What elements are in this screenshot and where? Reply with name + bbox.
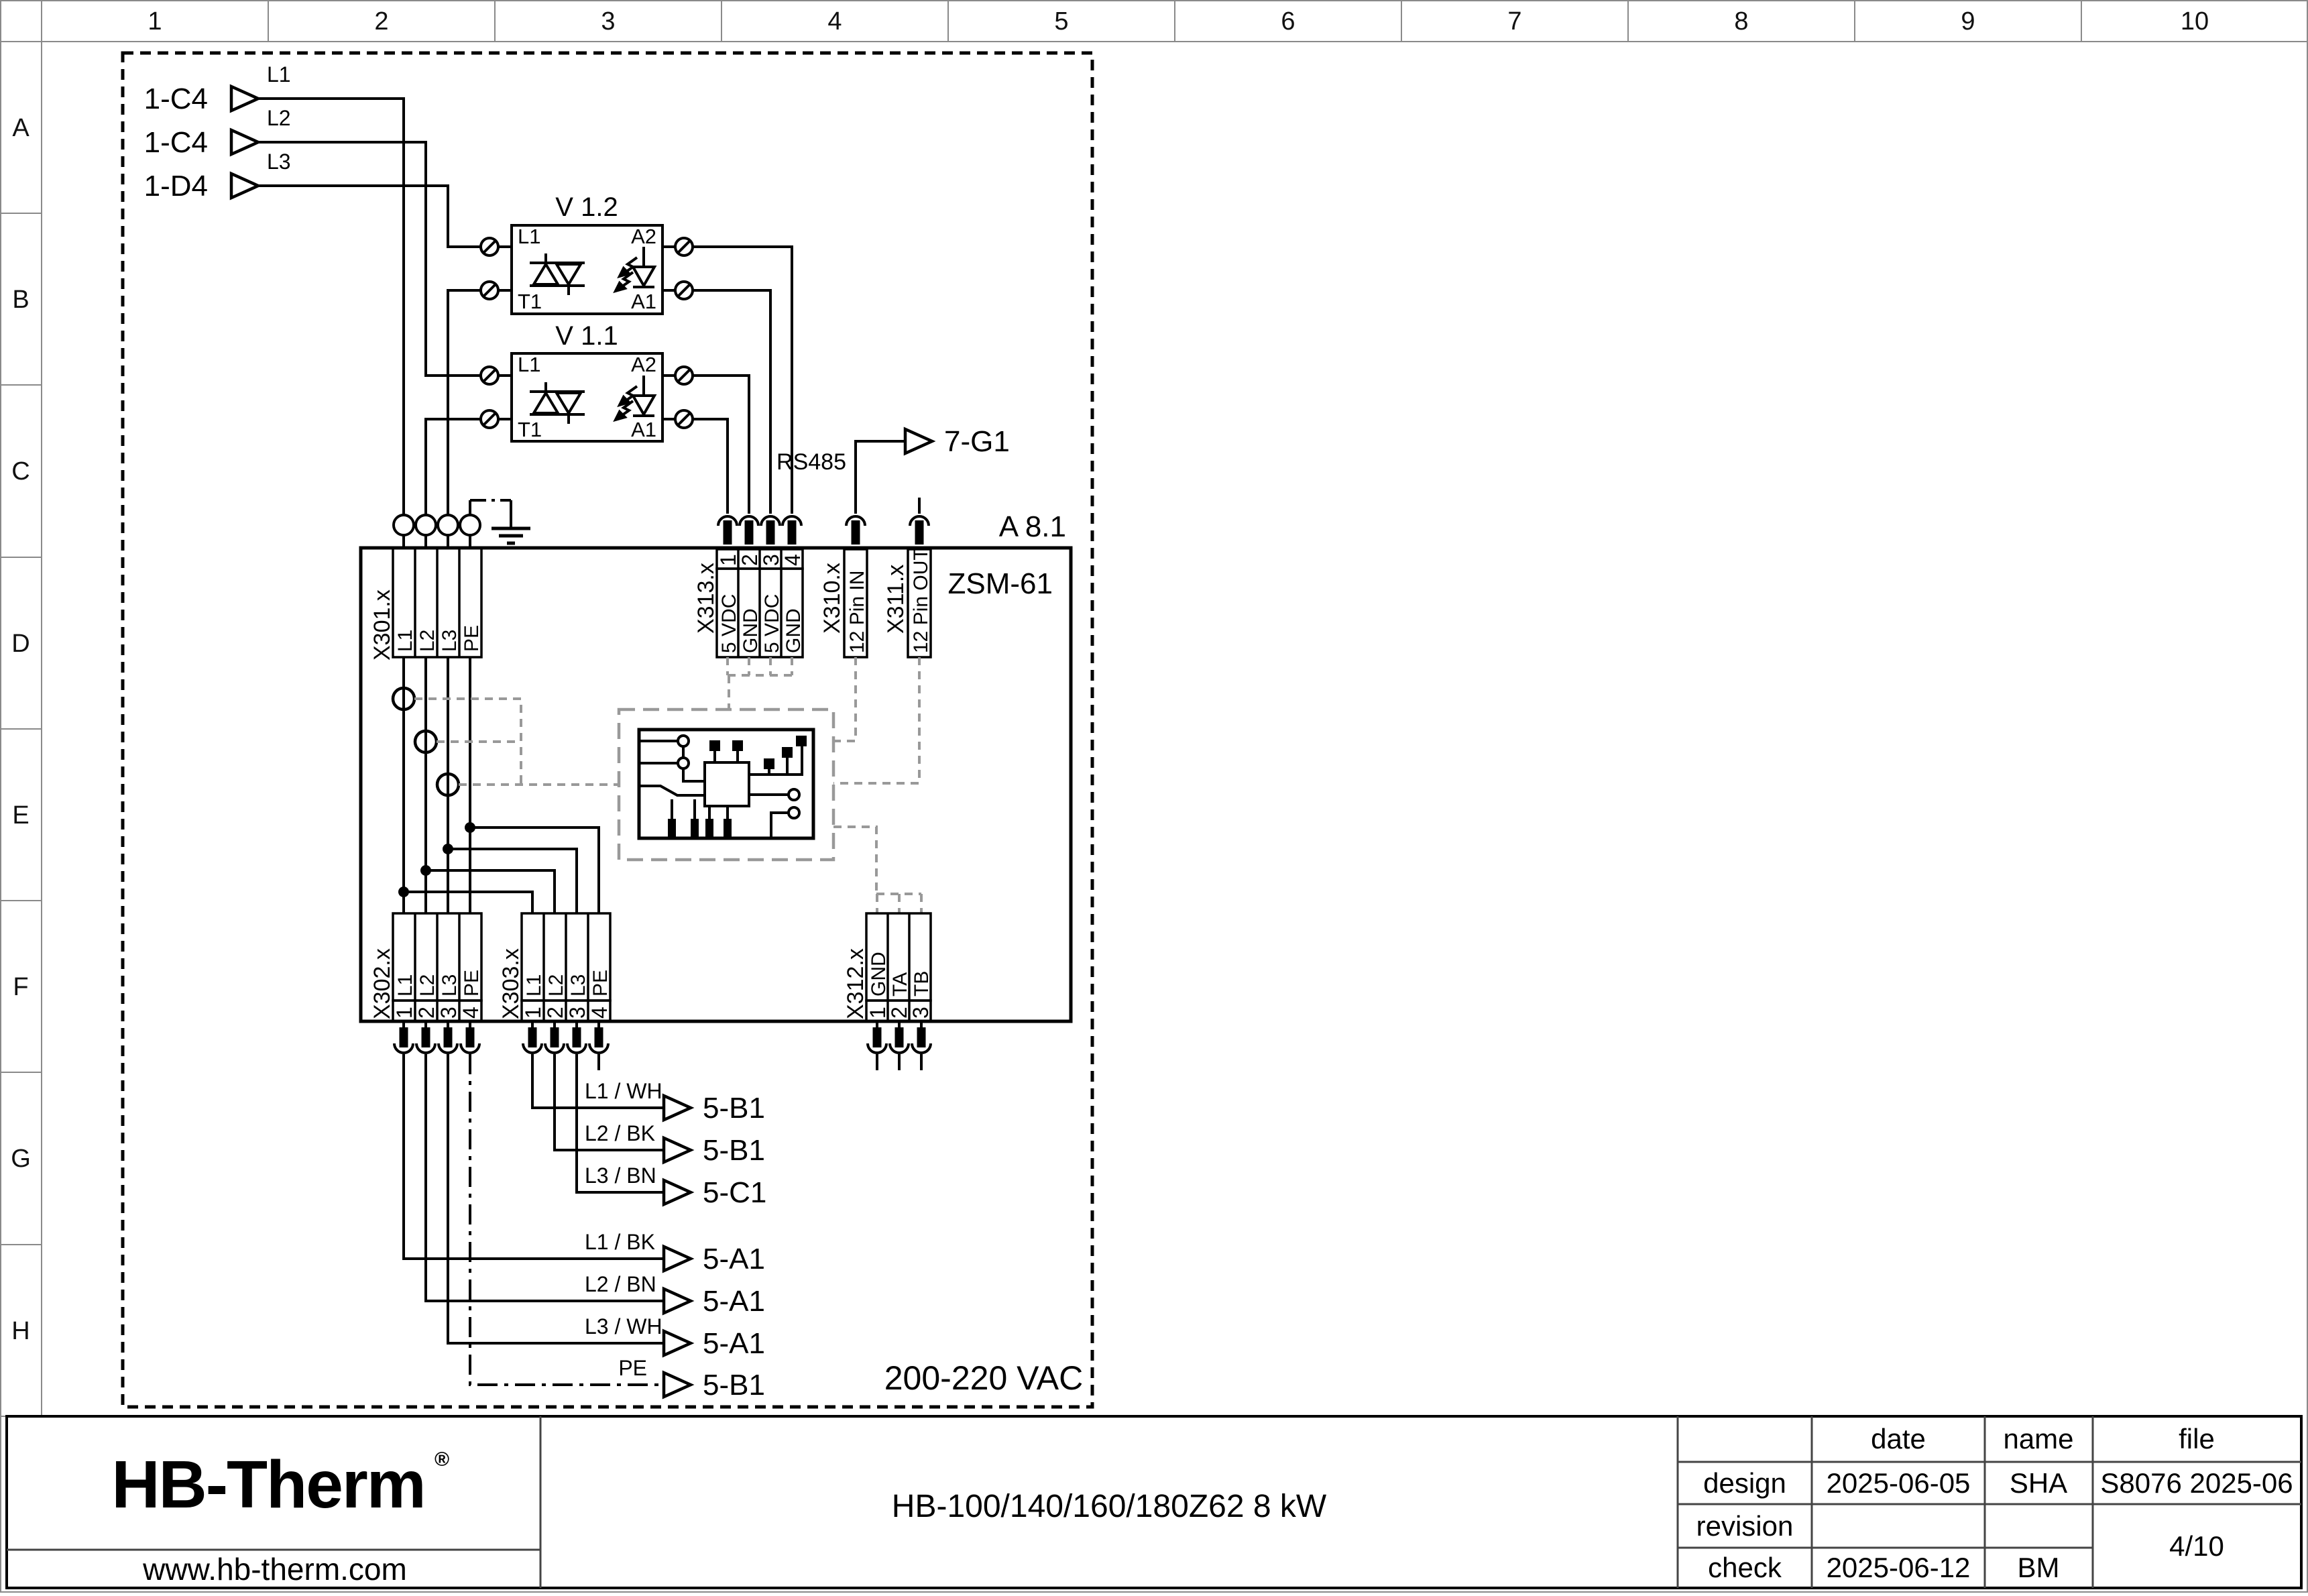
output-ref: 5-B1	[703, 1134, 765, 1167]
input-arrow-icon	[231, 130, 258, 154]
col-label: 8	[1734, 7, 1748, 36]
row-label: F	[13, 973, 28, 1001]
outputs-lower: L1 / BK 5-A1 L2 / BN 5-A1 L3 / WH 5-A1 P…	[585, 1230, 765, 1402]
website: www.hb-therm.com	[142, 1552, 407, 1587]
pin-signal: GND	[868, 952, 890, 996]
output-arrow-icon	[664, 1331, 691, 1355]
input-arrow-icon	[231, 174, 258, 198]
pin-signal: L3	[439, 630, 461, 652]
wire-label: L3 / WH	[585, 1314, 662, 1338]
check-name: BM	[2018, 1552, 2060, 1583]
wire-label: L1 / WH	[585, 1079, 662, 1103]
ssr-v12: V 1.2 L1 A2 T1 A1	[512, 192, 662, 314]
output-arrow-icon	[664, 1247, 691, 1271]
ssr-pin-l1: L1	[518, 225, 540, 248]
output-arrow-icon	[664, 1289, 691, 1313]
col-label: 10	[2181, 7, 2209, 36]
pin-signal: L3	[439, 974, 461, 996]
pin-signal: PE	[461, 625, 483, 652]
pin-signal: PE	[589, 970, 612, 996]
pin-signal: PE	[461, 970, 483, 996]
pin-number: 1	[521, 1007, 545, 1019]
output-ref: 5-A1	[703, 1285, 765, 1318]
phase-label: L1	[267, 62, 291, 87]
output-arrow-icon	[664, 1096, 691, 1120]
connector-x310: X310.x 12 Pin IN	[819, 549, 868, 657]
output-arrow-icon	[905, 429, 932, 453]
pin-number: 2	[543, 1007, 567, 1019]
row-label: B	[12, 286, 29, 314]
output-ref: 5-B1	[703, 1092, 765, 1125]
file-value: S8076 2025-06	[2100, 1467, 2293, 1499]
supply-voltage-label: 200-220 VAC	[884, 1359, 1083, 1397]
row-label-design: design	[1703, 1467, 1786, 1499]
pin-signal: 5 VDC	[761, 594, 783, 653]
x301-socket-icons	[394, 515, 480, 535]
col-label: 5	[1054, 7, 1068, 36]
ssr-pin-a2: A2	[631, 353, 656, 376]
pin-signal: 12 Pin IN	[846, 571, 868, 653]
col-label: 9	[1961, 7, 1975, 36]
pin-signal: 5 VDC	[718, 594, 740, 653]
output-arrow-icon	[664, 1138, 691, 1162]
row-label: A	[12, 114, 30, 142]
pin-number: 2	[887, 1007, 911, 1019]
input-arrow-icon	[231, 87, 258, 111]
row-label: C	[11, 457, 30, 486]
ssr-pin-l1: L1	[518, 353, 540, 376]
pin-signal: 12 Pin OUT	[910, 548, 932, 653]
pin-number: 3	[565, 1007, 589, 1019]
connector-label: X301.x	[369, 589, 395, 661]
row-label: H	[11, 1317, 30, 1345]
pin-number: 2	[414, 1007, 439, 1019]
pin-signal: L1	[394, 974, 416, 996]
output-ref: 5-A1	[703, 1327, 765, 1360]
drawing-title: HB-100/140/160/180Z62 8 kW	[892, 1489, 1327, 1524]
row-label: D	[11, 630, 30, 658]
comm-target-ref: 7-G1	[944, 425, 1010, 458]
ssr-title: V 1.1	[555, 321, 618, 351]
ssr-pin-t1: T1	[518, 290, 542, 313]
th-name: name	[2003, 1423, 2073, 1455]
drawing-border	[123, 53, 1092, 1407]
col-label: 2	[374, 7, 388, 36]
input-ref: 1-C4	[144, 82, 208, 115]
row-label: E	[12, 801, 29, 830]
pin-number: 2	[738, 554, 762, 566]
pin-number: 3	[437, 1007, 461, 1019]
pin-signal: TB	[911, 971, 933, 996]
connector-x303: X303.x L1 L2 L3 PE 1 2 3 4	[498, 913, 612, 1021]
module-name: ZSM-61	[948, 567, 1053, 600]
logo-registered-icon: ®	[435, 1448, 449, 1471]
pin-number: 3	[909, 1007, 933, 1019]
connector-x301: X301.x L1 L2 L3 PE	[369, 548, 483, 661]
pin-number: 4	[587, 1007, 612, 1019]
connector-x302: X302.x L1 L2 L3 PE 1 2 3 4	[369, 913, 483, 1021]
ssr-pin-a1: A1	[631, 290, 656, 313]
design-name: SHA	[2010, 1467, 2067, 1499]
connector-x311: X311.x 12 Pin OUT	[883, 548, 932, 657]
col-label: 7	[1507, 7, 1521, 36]
schematic-svg: 1 2 3 4 5 6 7 8 9 10 A B C D E F G H 1-C…	[0, 0, 2308, 1593]
connector-x312: X312.x GND TA TB 1 2 3	[843, 913, 933, 1021]
input-arrow-icons	[231, 87, 258, 198]
logo-text: HB-Therm	[111, 1447, 424, 1522]
pin-number: 1	[866, 1007, 890, 1019]
output-ref: 5-C1	[703, 1176, 766, 1209]
pin-number: 1	[392, 1007, 416, 1019]
connector-label: X311.x	[883, 565, 909, 634]
triac-icon	[530, 253, 585, 295]
pin-number: 1	[716, 554, 740, 566]
connector-label: X310.x	[819, 563, 845, 634]
pin-number: 4	[781, 554, 805, 566]
pcb-graphic	[619, 709, 833, 860]
title-block: HB-Therm ® www.hb-therm.com HB-100/140/1…	[7, 1416, 2301, 1588]
th-file: file	[2179, 1423, 2215, 1455]
phase-label: L2	[267, 106, 291, 130]
ruler-grid	[0, 0, 2308, 1592]
output-ref: 5-A1	[703, 1243, 765, 1275]
row-label: G	[11, 1145, 31, 1173]
pin-number: 4	[459, 1007, 483, 1019]
pin-signal: L2	[545, 974, 567, 996]
check-date: 2025-06-12	[1827, 1552, 1971, 1583]
bus-label: RS485	[776, 449, 846, 475]
connector-x313: X313.x 1 2 3 4 5 VDC GND 5 VDC GND	[693, 549, 805, 657]
column-labels: 1 2 3 4 5 6 7 8 9 10	[148, 7, 2209, 36]
col-label: 1	[148, 7, 162, 36]
pin-signal: L2	[416, 630, 439, 652]
ssr-title: V 1.2	[555, 192, 618, 222]
input-ref: 1-C4	[144, 126, 208, 159]
rs485-link: RS485 7-G1	[776, 425, 1010, 475]
input-ref: 1-D4	[144, 170, 208, 203]
wire-label: L2 / BN	[585, 1272, 656, 1296]
outputs-upper: L1 / WH 5-B1 L2 / BK 5-B1 L3 / BN 5-C1	[585, 1079, 766, 1209]
connector-label: X303.x	[498, 948, 524, 1019]
wire-label: L2 / BK	[585, 1121, 655, 1145]
diode-icon	[633, 247, 662, 290]
wires	[258, 99, 921, 1343]
bottom-pin-plug-icons	[394, 1021, 931, 1053]
pin-signal: L1	[523, 974, 545, 996]
aux-dashed-links	[414, 657, 921, 913]
pin-signal: TA	[889, 972, 911, 996]
pin-signal: GND	[740, 608, 762, 653]
top-pin-plug-icons	[718, 516, 929, 545]
th-date: date	[1871, 1423, 1926, 1455]
junction-dots	[398, 822, 475, 897]
ssr-v11: V 1.1 L1 A2 T1 A1	[512, 321, 662, 441]
diode-icon	[633, 376, 654, 416]
col-label: 3	[601, 7, 615, 36]
pin-signal: L2	[416, 974, 439, 996]
pin-signal: GND	[783, 608, 805, 653]
module-ref: A 8.1	[999, 510, 1066, 543]
design-date: 2025-06-05	[1827, 1467, 1971, 1499]
company-logo: HB-Therm ®	[111, 1447, 449, 1522]
connector-label: X312.x	[843, 948, 868, 1019]
schematic-sheet: 1 2 3 4 5 6 7 8 9 10 A B C D E F G H 1-C…	[0, 0, 2308, 1593]
row-label-revision: revision	[1696, 1510, 1794, 1542]
connector-label: X313.x	[693, 563, 719, 634]
output-arrow-icon	[664, 1180, 691, 1204]
phase-label: L3	[267, 150, 291, 174]
wire-label: L3 / BN	[585, 1163, 656, 1188]
col-label: 4	[827, 7, 842, 36]
wire-label: L1 / BK	[585, 1230, 655, 1254]
ssr-pin-t1: T1	[518, 418, 542, 441]
ssr-pin-a2: A2	[631, 225, 656, 248]
pin-signal: L3	[567, 974, 589, 996]
col-label: 6	[1281, 7, 1295, 36]
pin-number: 3	[759, 554, 783, 566]
output-ref: 5-B1	[703, 1369, 765, 1402]
wire-label: PE	[618, 1356, 647, 1380]
pcb-components	[668, 736, 807, 838]
connector-label: X302.x	[369, 948, 395, 1019]
row-label-check: check	[1708, 1552, 1782, 1583]
ssr-pin-a1: A1	[631, 418, 656, 441]
pin-signal: L1	[394, 630, 416, 652]
input-references: 1-C4 1-C4 1-D4 L1 L2 L3	[144, 62, 291, 203]
output-arrow-icon	[664, 1373, 691, 1397]
page-number: 4/10	[2169, 1530, 2224, 1562]
